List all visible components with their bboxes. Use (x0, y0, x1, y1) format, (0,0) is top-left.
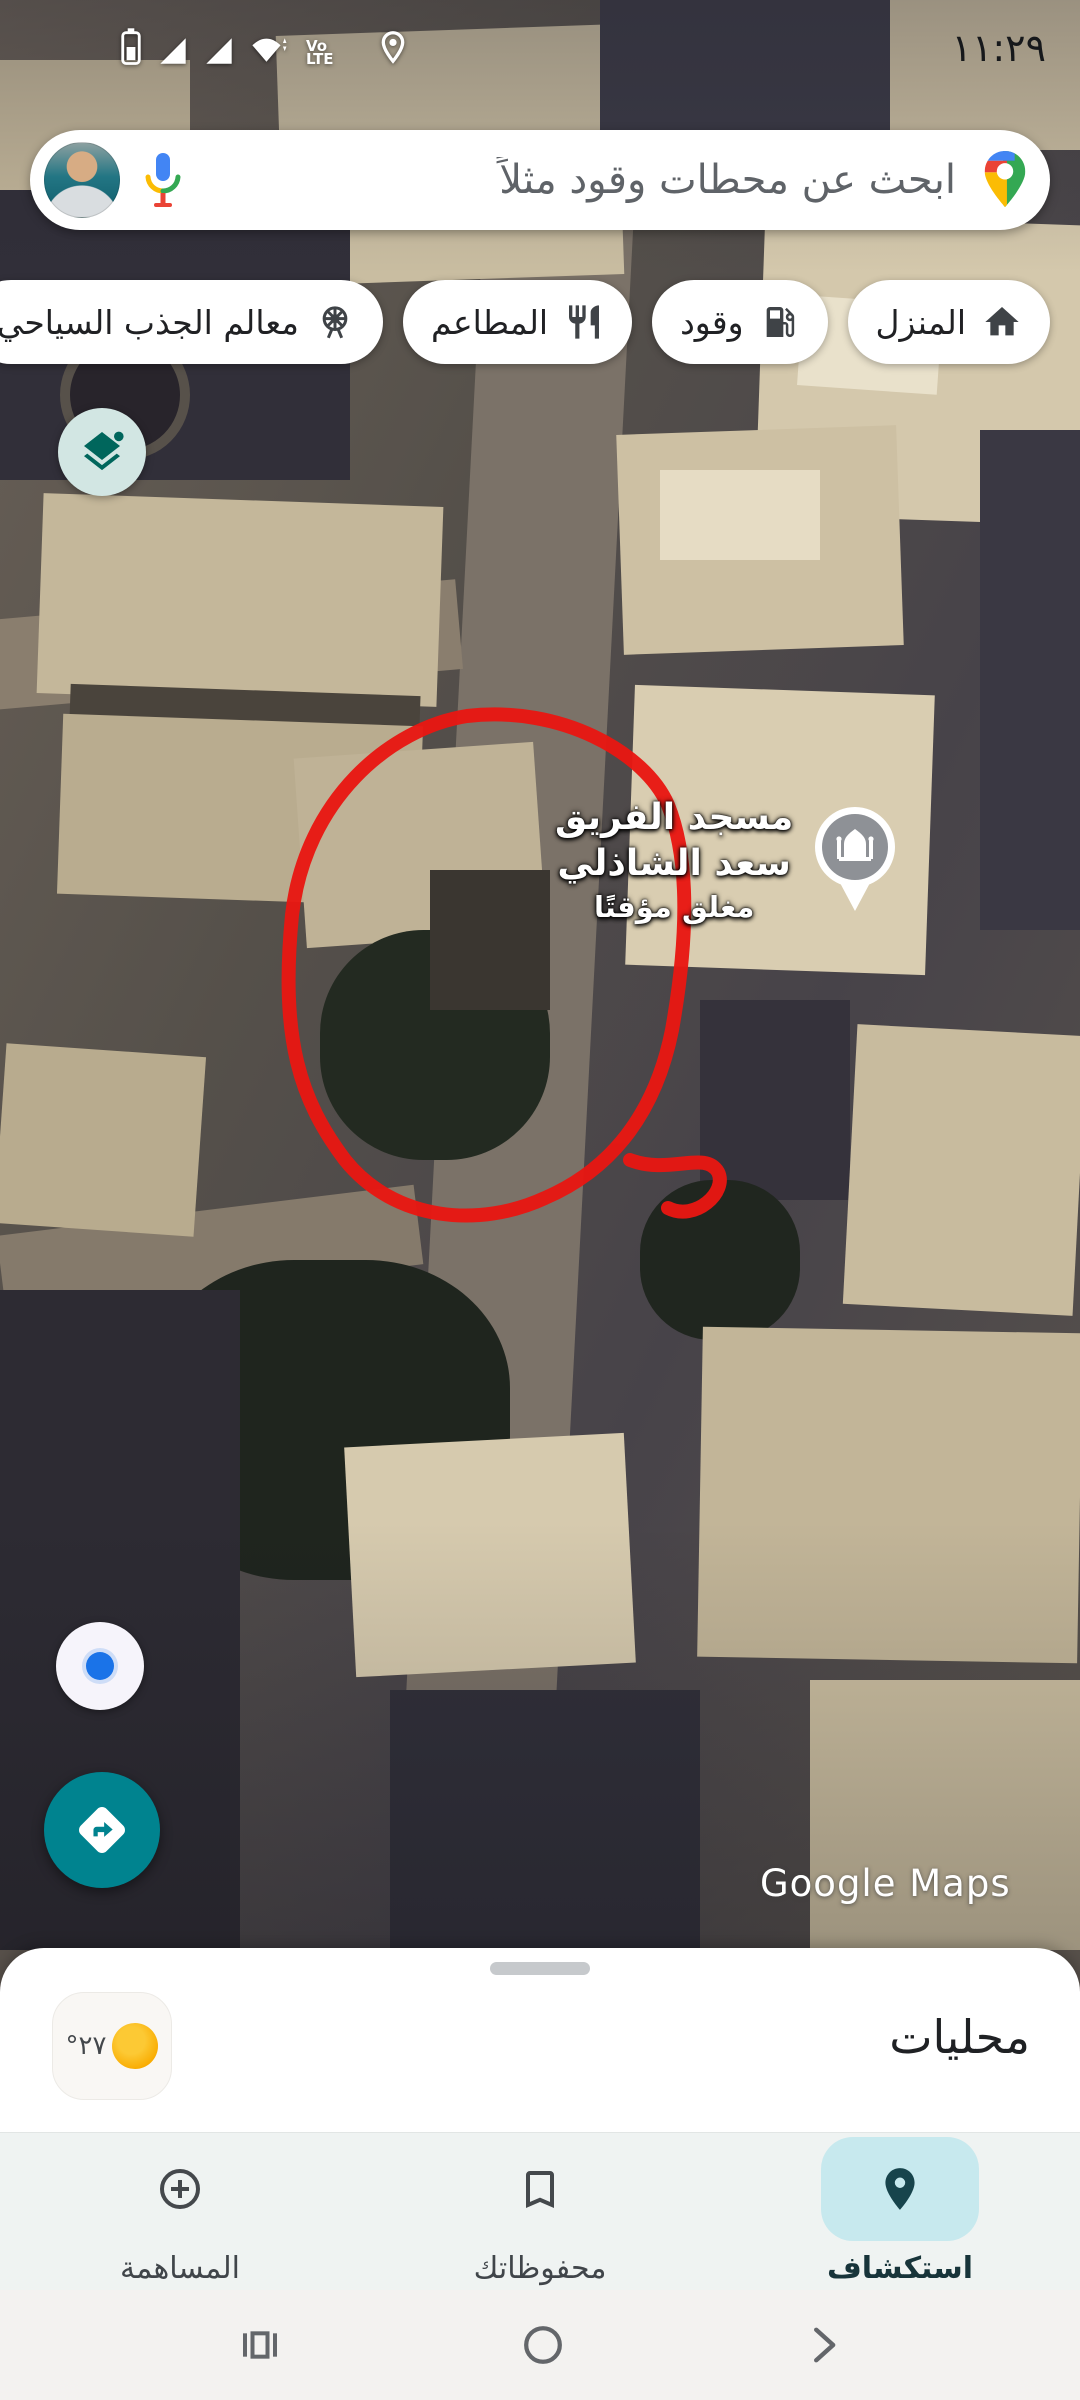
search-input[interactable]: ابحث عن محطات وقود مثلاً (206, 157, 956, 203)
bookmark-icon (516, 2165, 564, 2213)
status-time: ١١:٢٩ (952, 26, 1046, 70)
bottom-navigation: استكشاف محفوظاتك المساهمة (0, 2132, 1080, 2290)
home-button[interactable] (520, 2322, 566, 2368)
weather-chip[interactable]: °٢٧ (52, 1992, 172, 2100)
google-maps-app: مسجد الفريق سعد الشاذلي مغلق مؤقتًا Goog… (0, 0, 1080, 2400)
directions-fab[interactable] (44, 1772, 160, 1888)
nav-tab-contribute[interactable]: المساهمة (0, 2133, 360, 2290)
category-chips: المنزل وقود المطاعم معالم الجذب السياحي (0, 280, 1050, 364)
google-maps-watermark: Google Maps (760, 1862, 1011, 1905)
home-icon (982, 302, 1022, 342)
chip-home[interactable]: المنزل (848, 280, 1050, 364)
signal-icon (158, 36, 188, 66)
weather-temperature: °٢٧ (66, 2031, 107, 2061)
poi-mosque-label[interactable]: مسجد الفريق سعد الشاذلي مغلق مؤقتًا (555, 795, 901, 927)
search-bar[interactable]: ابحث عن محطات وقود مثلاً (30, 130, 1050, 230)
android-navigation-bar (0, 2290, 1080, 2400)
layers-icon (78, 428, 126, 476)
sheet-drag-handle[interactable] (490, 1962, 590, 1975)
directions-icon (70, 1798, 134, 1862)
active-tab-pill (821, 2137, 979, 2241)
mosque-pin-icon (809, 803, 901, 915)
chip-restaurants[interactable]: المطاعم (403, 280, 632, 364)
fuel-icon (760, 302, 800, 342)
back-button[interactable] (801, 2323, 845, 2367)
wifi-icon (250, 34, 290, 66)
bottom-sheet[interactable]: محليات °٢٧ (0, 1948, 1080, 2132)
status-bar-icons: Vo LTE (120, 28, 410, 66)
google-maps-pin-logo (976, 149, 1034, 211)
chip-attractions[interactable]: معالم الجذب السياحي (0, 280, 383, 364)
nav-tab-explore[interactable]: استكشاف (720, 2133, 1080, 2290)
poi-name-line1: مسجد الفريق (555, 795, 793, 841)
sheet-title: محليات (889, 2010, 1030, 2064)
recents-button[interactable] (235, 2323, 285, 2367)
my-location-dot-icon (86, 1652, 114, 1680)
add-circle-icon (156, 2165, 204, 2213)
attractions-icon (315, 302, 355, 342)
explore-pin-icon (875, 2164, 925, 2214)
chip-fuel[interactable]: وقود (652, 280, 827, 364)
nav-tab-saved[interactable]: محفوظاتك (360, 2133, 720, 2290)
poi-name-line2: سعد الشاذلي (555, 841, 793, 887)
restaurant-icon (564, 302, 604, 342)
location-pin-icon (376, 30, 410, 66)
poi-status: مغلق مؤقتًا (555, 887, 793, 927)
volte-label: Vo LTE (306, 40, 334, 66)
mic-icon[interactable] (140, 149, 186, 211)
profile-avatar[interactable] (44, 142, 120, 218)
layers-button[interactable] (58, 408, 146, 496)
my-location-button[interactable] (56, 1622, 144, 1710)
battery-icon (120, 28, 142, 66)
signal-icon (204, 36, 234, 66)
sun-icon (112, 2023, 158, 2069)
